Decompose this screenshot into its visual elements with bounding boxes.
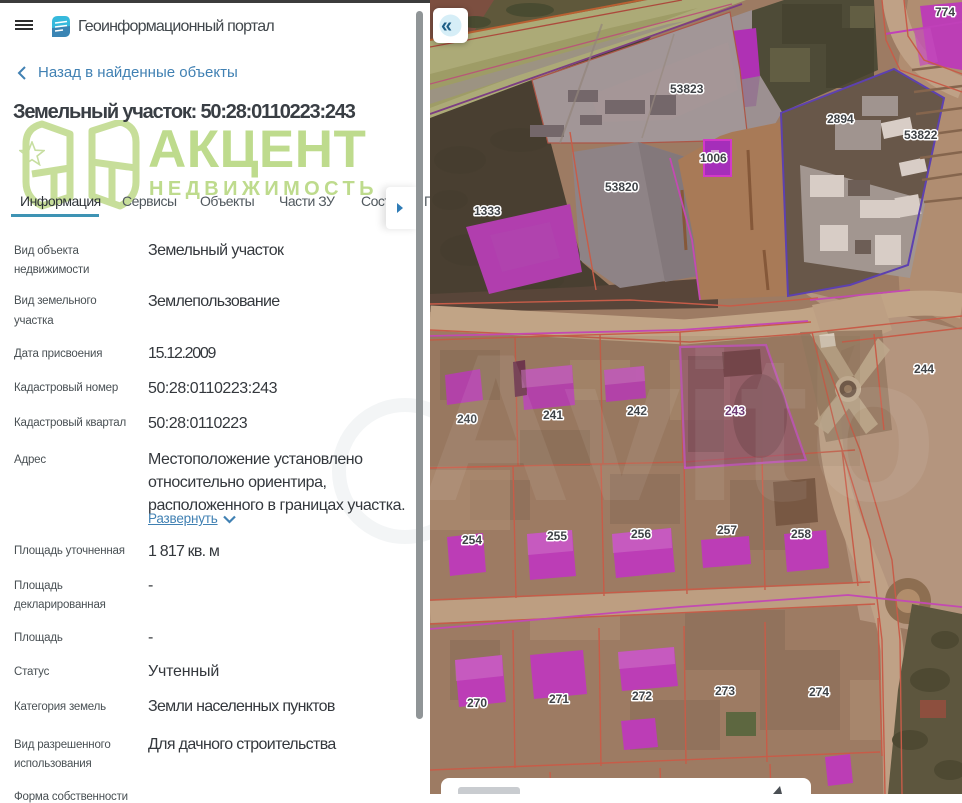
svg-text:«: « — [441, 15, 452, 37]
svg-text:274: 274 — [809, 685, 829, 699]
svg-text:53823: 53823 — [670, 82, 704, 96]
svg-text:Avito: Avito — [430, 310, 937, 545]
svg-text:272: 272 — [632, 689, 652, 703]
svg-text:53820: 53820 — [605, 180, 639, 194]
svg-text:270: 270 — [467, 696, 487, 710]
svg-text:53822: 53822 — [904, 128, 938, 142]
svg-text:2894: 2894 — [827, 112, 854, 126]
svg-text:271: 271 — [549, 692, 569, 706]
svg-text:1006: 1006 — [700, 151, 727, 165]
svg-text:273: 273 — [715, 684, 735, 698]
svg-text:774: 774 — [935, 5, 955, 19]
svg-text:1333: 1333 — [474, 204, 501, 218]
